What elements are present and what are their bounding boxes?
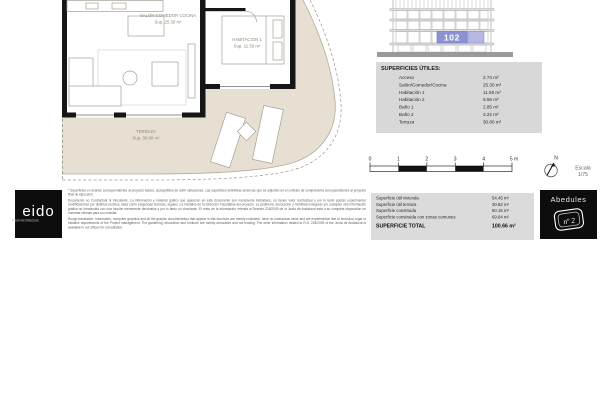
north-arrow-icon: N [545, 156, 558, 177]
summary-label: Superficie útil terraza [376, 202, 416, 207]
superficies-utiles-table: SUPERFICIES ÚTILES: Acceso 2.73 m² Salón… [376, 62, 542, 133]
superficies-title: SUPERFICIES ÚTILES: [381, 66, 547, 72]
table-row: Superficie construida con zonas comunes … [376, 214, 539, 220]
table-row: Habitación 1 11.50 m² [381, 90, 547, 97]
summary-total-value: 100.66 m² [492, 224, 516, 230]
table-row: Salón/Comedor/Cocina 25.30 m² [381, 82, 547, 89]
summary-value: 30.82 m² [492, 202, 509, 207]
table-row: Acceso 2.73 m² [381, 75, 547, 82]
superficies-label: Habitación 2 [399, 97, 425, 102]
surface-summary-table: Superficie útil vivienda 54.45 m² Superf… [371, 193, 534, 240]
brand-tagline: Fresh Architecture [12, 219, 39, 223]
summary-value: 60.16 m² [492, 208, 509, 213]
superficies-label: Acceso [399, 75, 414, 80]
room-area-terraza: Sup. 30.80 m² [133, 136, 161, 141]
summary-value: 69.84 m² [492, 214, 509, 219]
superficies-value: 25.30 m² [483, 82, 501, 87]
superficies-value: 30.80 m² [483, 119, 501, 124]
summary-total-label: SUPERFICIE TOTAL [376, 224, 425, 230]
scale-tick-2: 2 [425, 157, 428, 163]
scale-tick-0: 0 [369, 157, 372, 163]
legal-paragraph-3: Rough translation: Information, computer… [68, 217, 366, 230]
superficies-label: Baño 2 [399, 112, 414, 117]
scale-ratio: Escala 1/75 [575, 166, 591, 179]
room-label-terraza: TERRAZA [136, 129, 156, 134]
scale-bar: 0 1 2 3 4 5 m [369, 157, 519, 172]
superficies-label: Baño 1 [399, 105, 414, 110]
summary-value: 54.45 m² [492, 196, 509, 201]
table-row: Habitación 2 9.55 m² [381, 97, 547, 104]
north-label: N [554, 156, 558, 162]
superficies-value: 2.73 m² [483, 75, 499, 80]
scale-tick-4: 4 [482, 157, 485, 163]
project-name: Abedules [550, 195, 586, 204]
abedules-badge: Abedules nº 2 [540, 190, 597, 239]
plan-sheet: SALÓN COMEDOR COCINA Sup. 25.30 m² HABIT… [0, 0, 600, 400]
unit-highlight: 102 [437, 32, 484, 44]
summary-label: Superficie útil vivienda [376, 196, 419, 201]
brand-wordmark: eido [22, 204, 54, 219]
project-number: nº 2 [562, 215, 575, 226]
superficies-label: Habitación 1 [399, 90, 425, 95]
superficies-label: Salón/Comedor/Cocina [399, 82, 447, 87]
escala-ratio: 1/75 [578, 172, 588, 178]
railing-hatch [396, 0, 488, 8]
room-area-habitacion1: Sup. 11.50 m² [234, 44, 261, 49]
summary-label: Superficie construida con zonas comunes [376, 214, 456, 219]
legal-paragraph-1: * Superficies en avance correspondientes… [68, 189, 366, 197]
table-row: Baño 1 2.85 m² [381, 105, 547, 112]
scale-tick-3: 3 [454, 157, 457, 163]
table-row: Baño 2 3.22 m² [381, 112, 547, 119]
room-label-salon: SALÓN COMEDOR COCINA [140, 13, 196, 18]
summary-total-row: SUPERFICIE TOTAL 100.66 m² [376, 224, 539, 231]
legal-disclaimer: * Superficies en avance correspondientes… [68, 189, 366, 241]
abedules-emblem-icon: nº 2 [551, 205, 587, 235]
superficies-value: 11.50 m² [483, 90, 501, 95]
escala-word: Escala [575, 166, 591, 172]
summary-label: Superficie construida [376, 208, 416, 213]
eido-logo: eido Fresh Architecture [15, 190, 62, 238]
ground-bar [377, 52, 513, 57]
superficies-label: Terraza [399, 119, 414, 124]
room-label-habitacion1: HABITACIÓN 1 [232, 37, 262, 42]
superficies-value: 9.55 m² [483, 97, 499, 102]
scale-tick-5: 5 m [510, 157, 518, 163]
scale-tick-1: 1 [397, 157, 400, 163]
legal-paragraph-2: Documento no Contractual ni Vinculante. … [68, 199, 366, 216]
building-elevation-diagram: 102 [377, 0, 513, 57]
unit-number-label: 102 [444, 33, 460, 43]
superficies-value: 3.22 m² [483, 112, 499, 117]
superficies-value: 2.85 m² [483, 105, 499, 110]
room-area-salon: Sup. 25.30 m² [155, 20, 183, 25]
table-row: Terraza 30.80 m² [381, 119, 547, 126]
floor-plan: SALÓN COMEDOR COCINA Sup. 25.30 m² HABIT… [62, 0, 341, 180]
